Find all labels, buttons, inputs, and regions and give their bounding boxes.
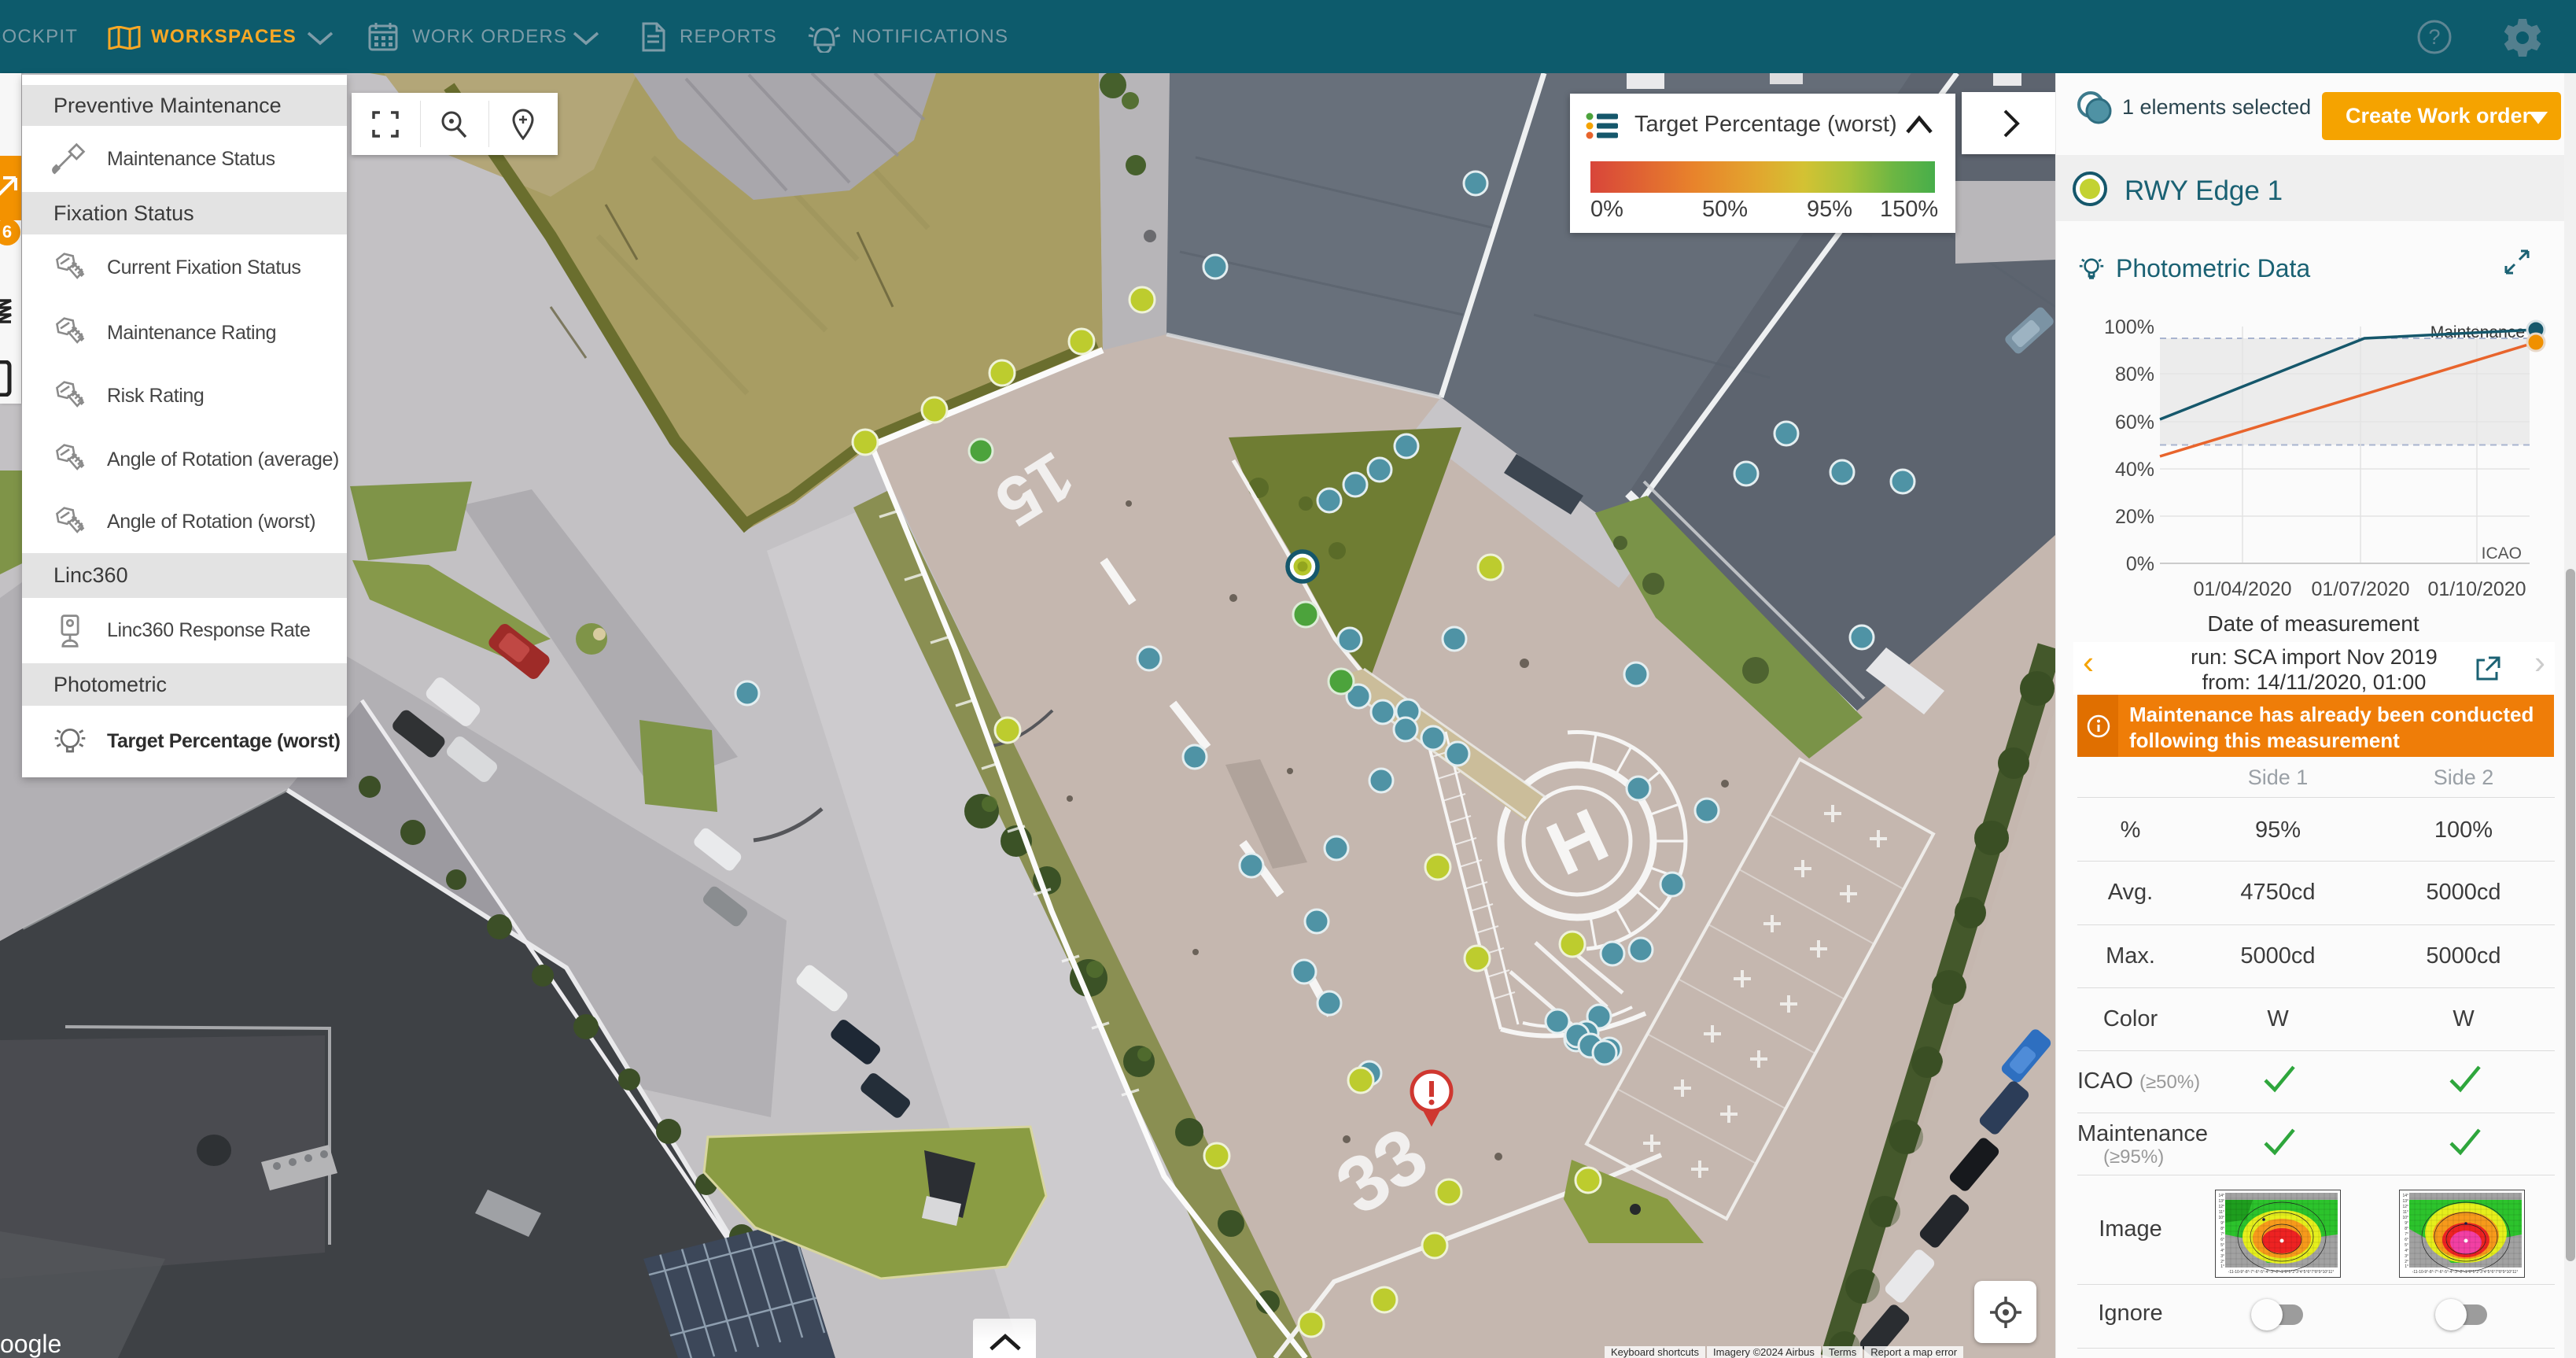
svg-text:13°: 13° [2218,1199,2224,1204]
svg-text:60%: 60% [2115,411,2154,434]
svg-text:10°: 10° [2402,1216,2408,1220]
svg-text:12°: 12° [2218,1205,2224,1209]
svg-text:6°: 6° [2405,1238,2408,1242]
svg-text:40%: 40% [2115,459,2154,481]
svg-text:01/04/2020: 01/04/2020 [2193,578,2291,600]
svg-text:8°: 8° [2220,1227,2224,1231]
svg-text:1°: 1° [2405,1264,2408,1269]
svg-text:0%: 0% [2126,553,2154,575]
svg-text:11°: 11° [2219,1210,2224,1215]
svg-text:3°: 3° [2405,1254,2408,1259]
svg-text:-11-10-9°-8°-7°-6°-5°-4°-3°-2°: -11-10-9°-8°-7°-6°-5°-4°-3°-2°-1°0°1°2°3… [2228,1270,2335,1275]
svg-text:3°: 3° [2220,1254,2224,1259]
svg-text:?: ? [2428,25,2440,49]
svg-text:13°: 13° [2402,1199,2408,1204]
svg-text:5°: 5° [2220,1243,2224,1248]
svg-text:ICAO: ICAO [2482,544,2522,563]
svg-text:5°: 5° [2405,1243,2408,1248]
svg-text:7°: 7° [2220,1232,2224,1237]
svg-text:9°: 9° [2220,1221,2224,1226]
svg-text:01/10/2020: 01/10/2020 [2427,578,2526,600]
svg-text:8°: 8° [2405,1227,2408,1231]
svg-text:80%: 80% [2115,363,2154,386]
svg-text:100%: 100% [2104,316,2154,338]
svg-text:4°: 4° [2405,1249,2408,1253]
svg-text:7°: 7° [2405,1232,2408,1237]
svg-text:11°: 11° [2403,1210,2408,1215]
svg-text:12°: 12° [2402,1205,2408,1209]
svg-text:20%: 20% [2115,506,2154,528]
svg-text:-11-10-9°-8°-7°-6°-5°-4°-3°-2°: -11-10-9°-8°-7°-6°-5°-4°-3°-2°-1°0°1°2°3… [2412,1270,2519,1275]
svg-text:1°: 1° [2220,1264,2224,1269]
svg-text:10°: 10° [2218,1216,2224,1220]
svg-text:oogle: oogle [0,1330,61,1358]
svg-text:6°: 6° [2220,1238,2224,1242]
svg-text:4°: 4° [2220,1249,2224,1253]
svg-text:9°: 9° [2405,1221,2408,1226]
svg-text:14°: 14° [2218,1194,2224,1198]
svg-text:14°: 14° [2402,1194,2408,1198]
svg-text:01/07/2020: 01/07/2020 [2311,578,2409,600]
